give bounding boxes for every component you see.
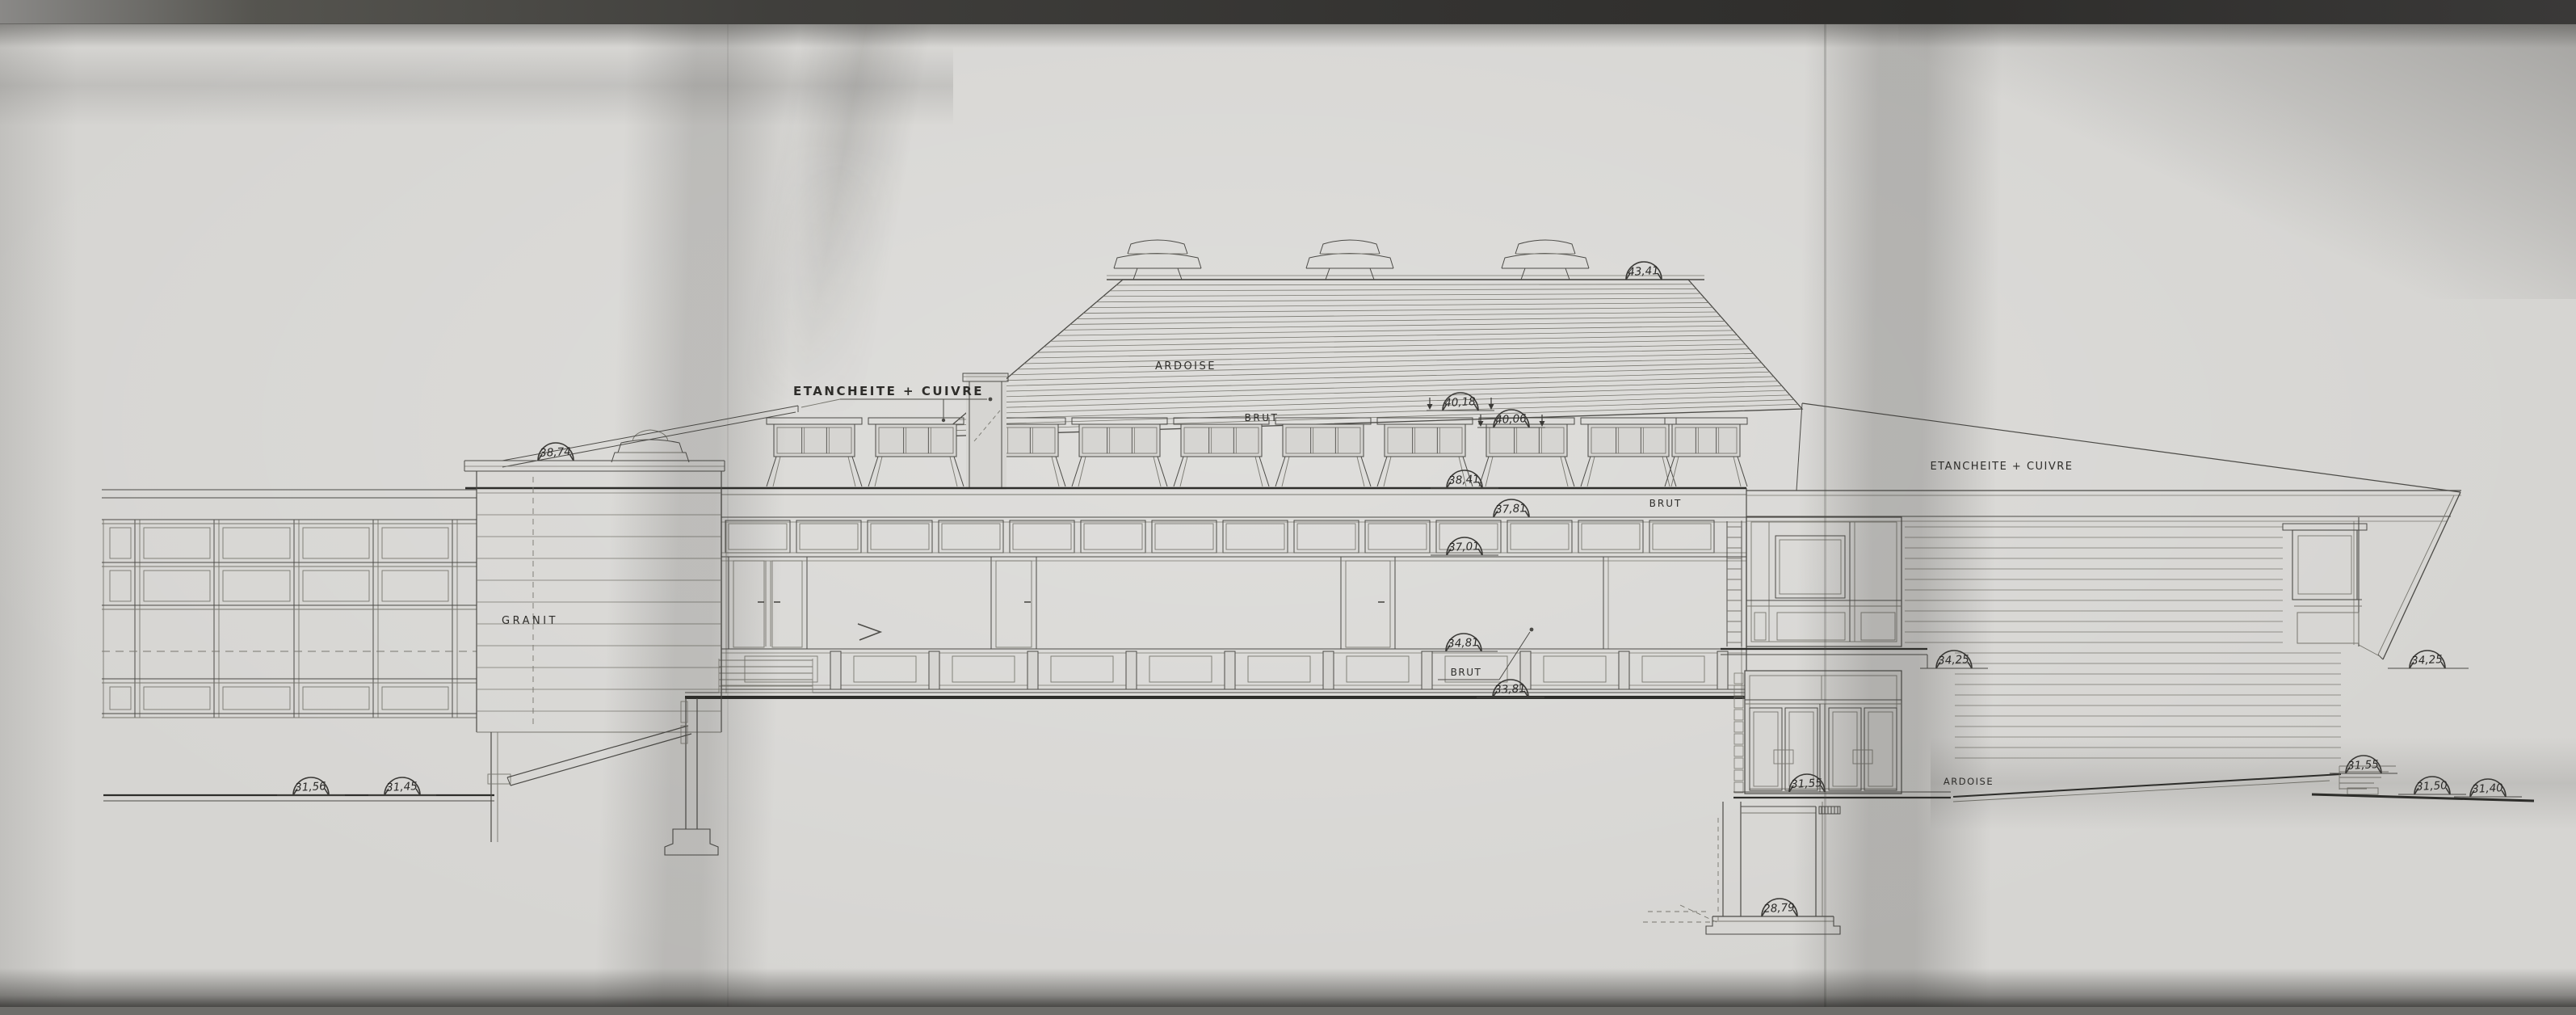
elevation-marker-value: 31,55 [2347, 758, 2379, 773]
elevation-marker-value: 31,50 [2416, 779, 2448, 794]
elevation-marker-value: 38,74 [540, 445, 571, 460]
elevation-marker-value: 37,81 [1495, 502, 1527, 516]
elevation-marker: 38,74 [522, 443, 590, 461]
elevation-marker-value: 31,55 [1791, 777, 1822, 791]
elevation-marker-value: 34,81 [1448, 636, 1479, 651]
substructure-left [103, 698, 718, 855]
label-etancheite-right: ETANCHEITE + CUIVRE [1930, 461, 2073, 473]
elevation-marker-value: 28,79 [1763, 901, 1795, 916]
left-wing [102, 406, 798, 718]
elevation-marker: 43,41 [1603, 262, 1695, 280]
elevation-markers: 38,7443,4140,1840,0638,4137,8137,0134,81… [277, 262, 2522, 916]
blueprint-photo: 38,7443,4140,1840,0638,4137,8137,0134,81… [0, 0, 2576, 1015]
label-brut-right: BRUT [1649, 498, 1683, 509]
elevation-marker: 31,50 [2398, 777, 2466, 794]
elevation-marker-value: 40,06 [1495, 412, 1527, 427]
label-etancheite-left: ETANCHEITE + CUIVRE [793, 384, 984, 398]
elevation-marker-value: 34,25 [2411, 653, 2443, 668]
elevation-marker: 28,79 [1746, 899, 1813, 916]
elevation-marker-value: 37,01 [1448, 540, 1480, 554]
elevation-marker-value: 34,25 [1938, 653, 1969, 668]
label-brut-center: BRUT [1451, 667, 1482, 678]
main-facade [465, 488, 1746, 697]
label-granit: GRANIT [502, 615, 558, 627]
label-ardoise-right: ARDOISE [1944, 776, 1994, 787]
roof-monitors [767, 418, 1747, 486]
granite-block [464, 461, 725, 732]
elevation-marker-value: 43,41 [1628, 264, 1659, 279]
elevation-marker-value: 38,41 [1448, 473, 1480, 487]
elevation-marker-value: 31,56 [295, 780, 326, 794]
elevation-marker-value: 33,81 [1494, 682, 1526, 697]
lower-entrance-block [1733, 671, 1951, 798]
label-ardoise-roof: ARDOISE [1155, 360, 1217, 373]
elevation-marker: 34,25 [2393, 651, 2461, 668]
label-brut-eave: BRUT [1245, 412, 1280, 423]
elevation-marker-value: 40,18 [1444, 395, 1476, 410]
elevation-marker: 31,45 [368, 777, 436, 795]
foundation-pier [1643, 802, 1840, 934]
elevation-marker-value: 31,45 [386, 780, 418, 794]
elevation-marker: 38,41 [1431, 470, 1498, 488]
elevation-drawing: 38,7443,4140,1840,0638,4137,8137,0134,81… [0, 0, 2576, 1015]
elevation-marker: 31,56 [277, 777, 345, 795]
main-roof [939, 276, 1802, 436]
elevation-marker: 37,81 [1477, 499, 1545, 517]
elevation-marker-value: 31,40 [2472, 781, 2503, 796]
